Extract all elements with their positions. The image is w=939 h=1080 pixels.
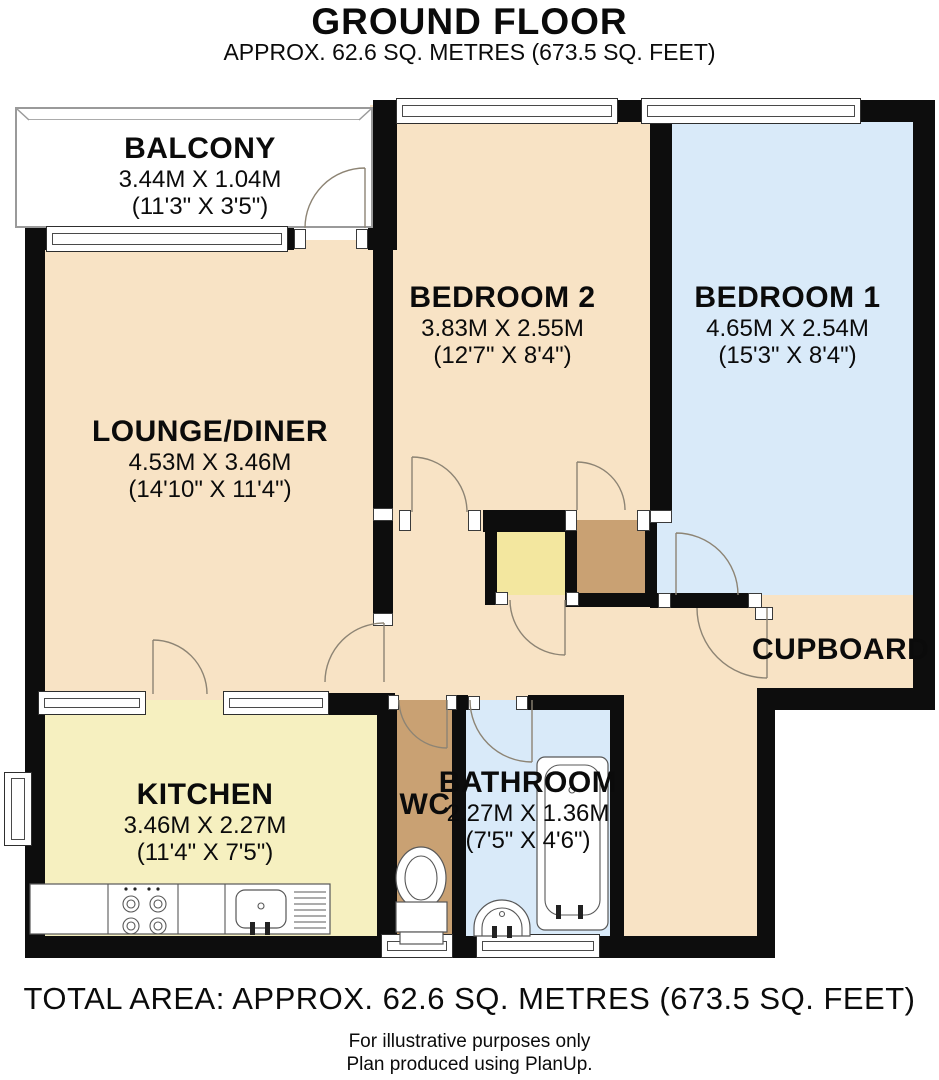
total-area-text: TOTAL AREA: APPROX. 62.6 SQ. METRES (673… <box>0 981 939 1017</box>
lounge-label: LOUNGE/DINER 4.53M X 3.46M (14'10" X 11'… <box>60 415 360 503</box>
wall <box>913 100 935 710</box>
kitchen-hatch-window-right <box>223 691 329 715</box>
door-jamb <box>748 593 762 608</box>
cupboard-label: CUPBOARD <box>752 633 937 667</box>
bedroom1-window <box>641 98 861 124</box>
page-subtitle: APPROX. 62.6 SQ. METRES (673.5 SQ. FEET) <box>0 39 939 66</box>
page-title: GROUND FLOOR <box>0 1 939 43</box>
kitchen-label: KITCHEN 3.46M X 2.27M (11'4" X 7'5") <box>55 778 355 866</box>
door-jamb <box>565 510 577 531</box>
wall <box>485 510 497 605</box>
airing-cupboard-floor <box>577 520 645 595</box>
floorplan-page: GROUND FLOOR APPROX. 62.6 SQ. METRES (67… <box>0 0 939 1080</box>
disclaimer-text: For illustrative purposes only <box>0 1031 939 1053</box>
door-jamb <box>399 510 411 531</box>
door-jamb <box>516 696 528 710</box>
door-jamb <box>755 607 773 620</box>
door-jamb <box>373 613 393 626</box>
door-jamb <box>637 510 650 531</box>
bedroom2-label: BEDROOM 2 3.83M X 2.55M (12'7" X 8'4") <box>370 281 635 369</box>
bedroom2-window <box>396 98 618 124</box>
door-jamb <box>373 508 393 521</box>
door-jamb <box>294 229 306 249</box>
door-jamb <box>446 695 457 710</box>
door-jamb <box>566 592 579 606</box>
wall <box>25 228 45 958</box>
door-jamb <box>468 510 481 531</box>
kitchen-hatch-window-left <box>38 691 146 715</box>
bathroom-window <box>476 934 600 958</box>
lounge-balcony-window <box>46 226 288 252</box>
door-jamb <box>388 695 399 710</box>
door-jamb <box>658 593 671 608</box>
wall <box>757 688 935 710</box>
wall <box>528 695 622 710</box>
balcony-label: BALCONY 3.44M X 1.04M (11'3" X 3'5") <box>60 132 340 220</box>
credit-text: Plan produced using PlanUp. <box>0 1054 939 1076</box>
wc-window <box>381 934 453 958</box>
door-jamb <box>468 696 480 710</box>
kitchen-side-window <box>4 772 32 846</box>
bathroom-label: BATHROOM 2.27M X 1.36M (7'5" X 4'6") <box>388 766 668 854</box>
wall <box>373 100 397 250</box>
door-jamb <box>356 229 368 249</box>
wall <box>645 518 657 605</box>
wall <box>325 693 395 715</box>
bedroom1-label: BEDROOM 1 4.65M X 2.54M (15'3" X 8'4") <box>655 281 920 369</box>
door-jamb <box>495 592 508 605</box>
wall <box>757 688 775 958</box>
door-jamb <box>650 510 672 523</box>
balcony-inner-line <box>28 119 360 120</box>
